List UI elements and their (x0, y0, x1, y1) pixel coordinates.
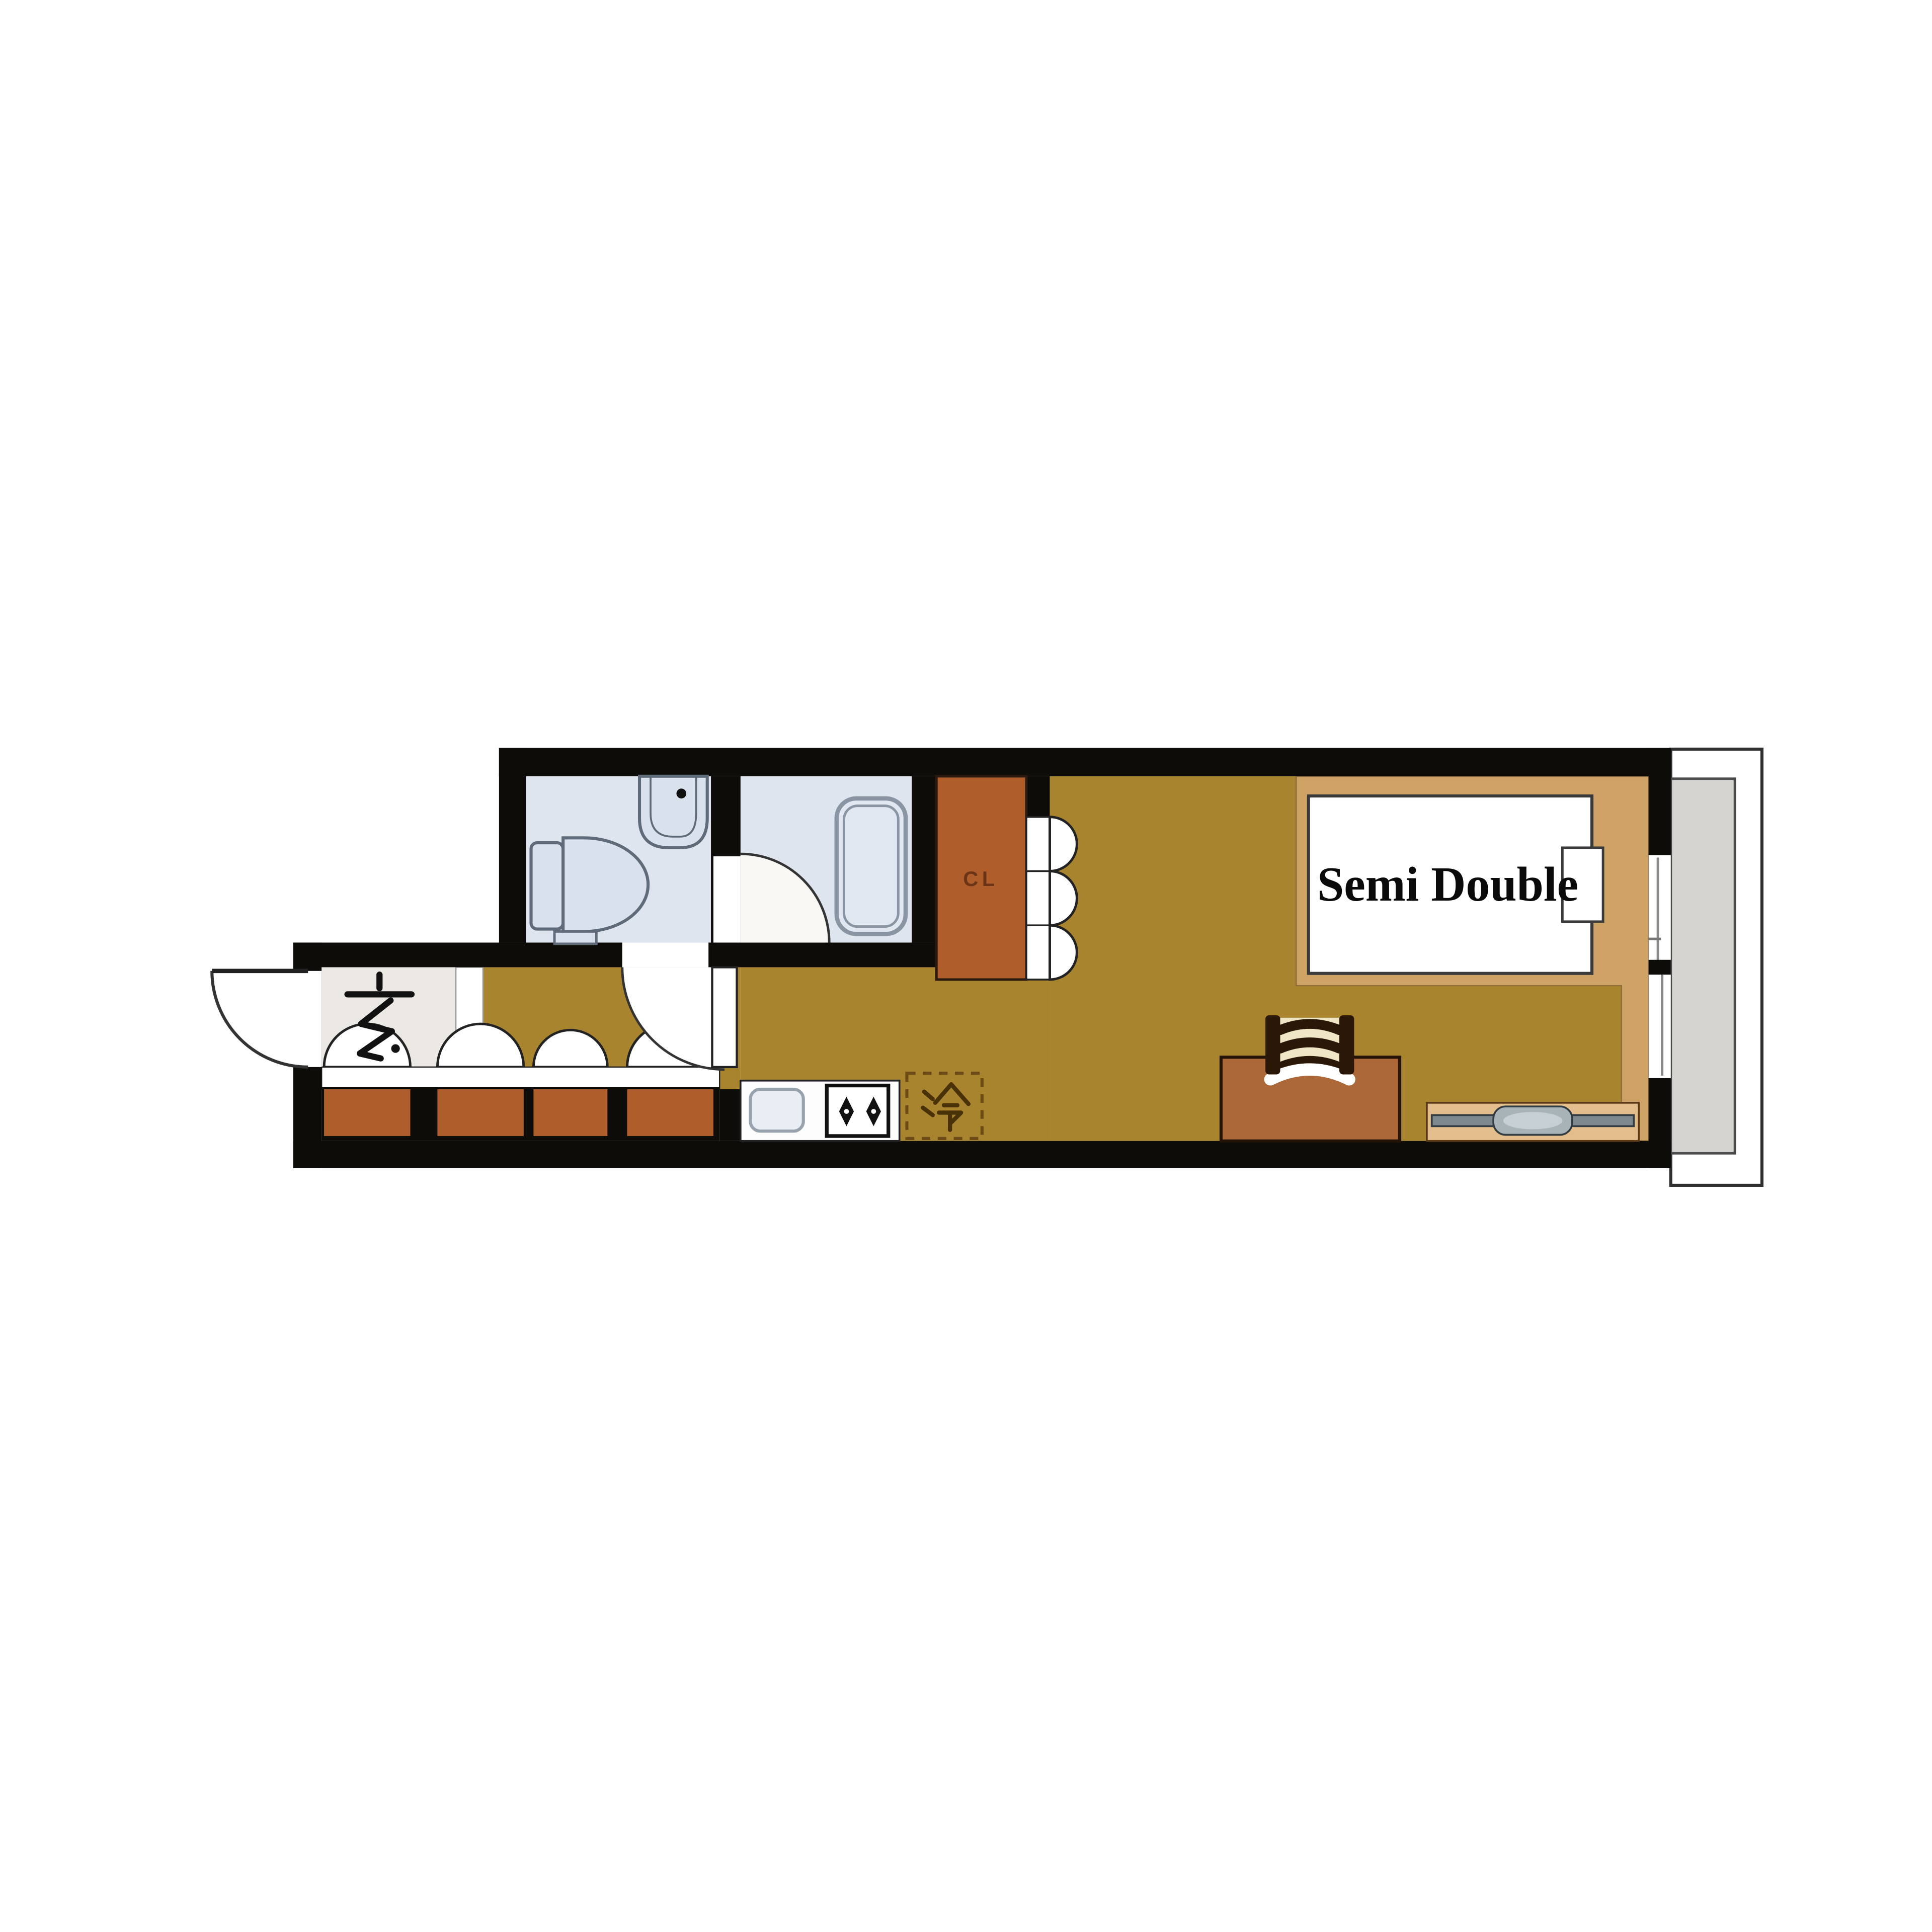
burner-dot-right (871, 1109, 876, 1114)
bed: Semi Double (1309, 796, 1603, 974)
closet-folding-door-strip (1026, 817, 1050, 980)
wall-kitchen-stub (719, 1089, 741, 1141)
bath-door-opening (713, 856, 741, 942)
toilet-base (554, 931, 596, 943)
cabinet-box-1 (324, 1089, 410, 1136)
wall-top (499, 748, 1671, 776)
bathtub-outer (837, 798, 906, 934)
balcony (1671, 749, 1762, 1185)
floor-plan-page: CL 玄 (0, 0, 1932, 1932)
cabinet-box-4 (627, 1089, 713, 1136)
toilet-tank (531, 843, 563, 929)
closet-label: CL (963, 867, 998, 891)
balcony-floor (1671, 779, 1735, 1153)
chair-post-right (1339, 1015, 1354, 1075)
entrance-label-group: 玄 (344, 971, 415, 1059)
toilet-door-opening (622, 942, 708, 967)
floor-plan-drawing: CL 玄 (0, 0, 1932, 1932)
wall-mid-band (293, 942, 936, 967)
shoe-cabinet (321, 1067, 719, 1141)
burner-dot-left (844, 1109, 849, 1114)
bed-label: Semi Double (1317, 857, 1578, 912)
kitchen (741, 1081, 900, 1141)
wall-bath-closet (912, 776, 936, 943)
cabinet-box-3 (533, 1089, 607, 1136)
cabinet-box-2 (437, 1089, 523, 1136)
chair-post-left (1265, 1015, 1280, 1075)
wall-bottom (293, 1141, 1671, 1168)
entrance-glyph-dot (391, 1044, 400, 1053)
toilet-door-leaf (712, 967, 737, 1067)
window-meeting-joint (1649, 960, 1671, 975)
tv-board (1427, 1103, 1639, 1141)
tv-base-hub-inner (1503, 1112, 1563, 1129)
cabinet-front-strip (321, 1067, 719, 1089)
wall-closet-door-chunk (1026, 776, 1050, 817)
bathtub (837, 798, 906, 934)
kitchen-sink (750, 1089, 803, 1131)
hand-sink-faucet-icon (676, 788, 686, 798)
wall-left-upper-block (499, 748, 526, 943)
